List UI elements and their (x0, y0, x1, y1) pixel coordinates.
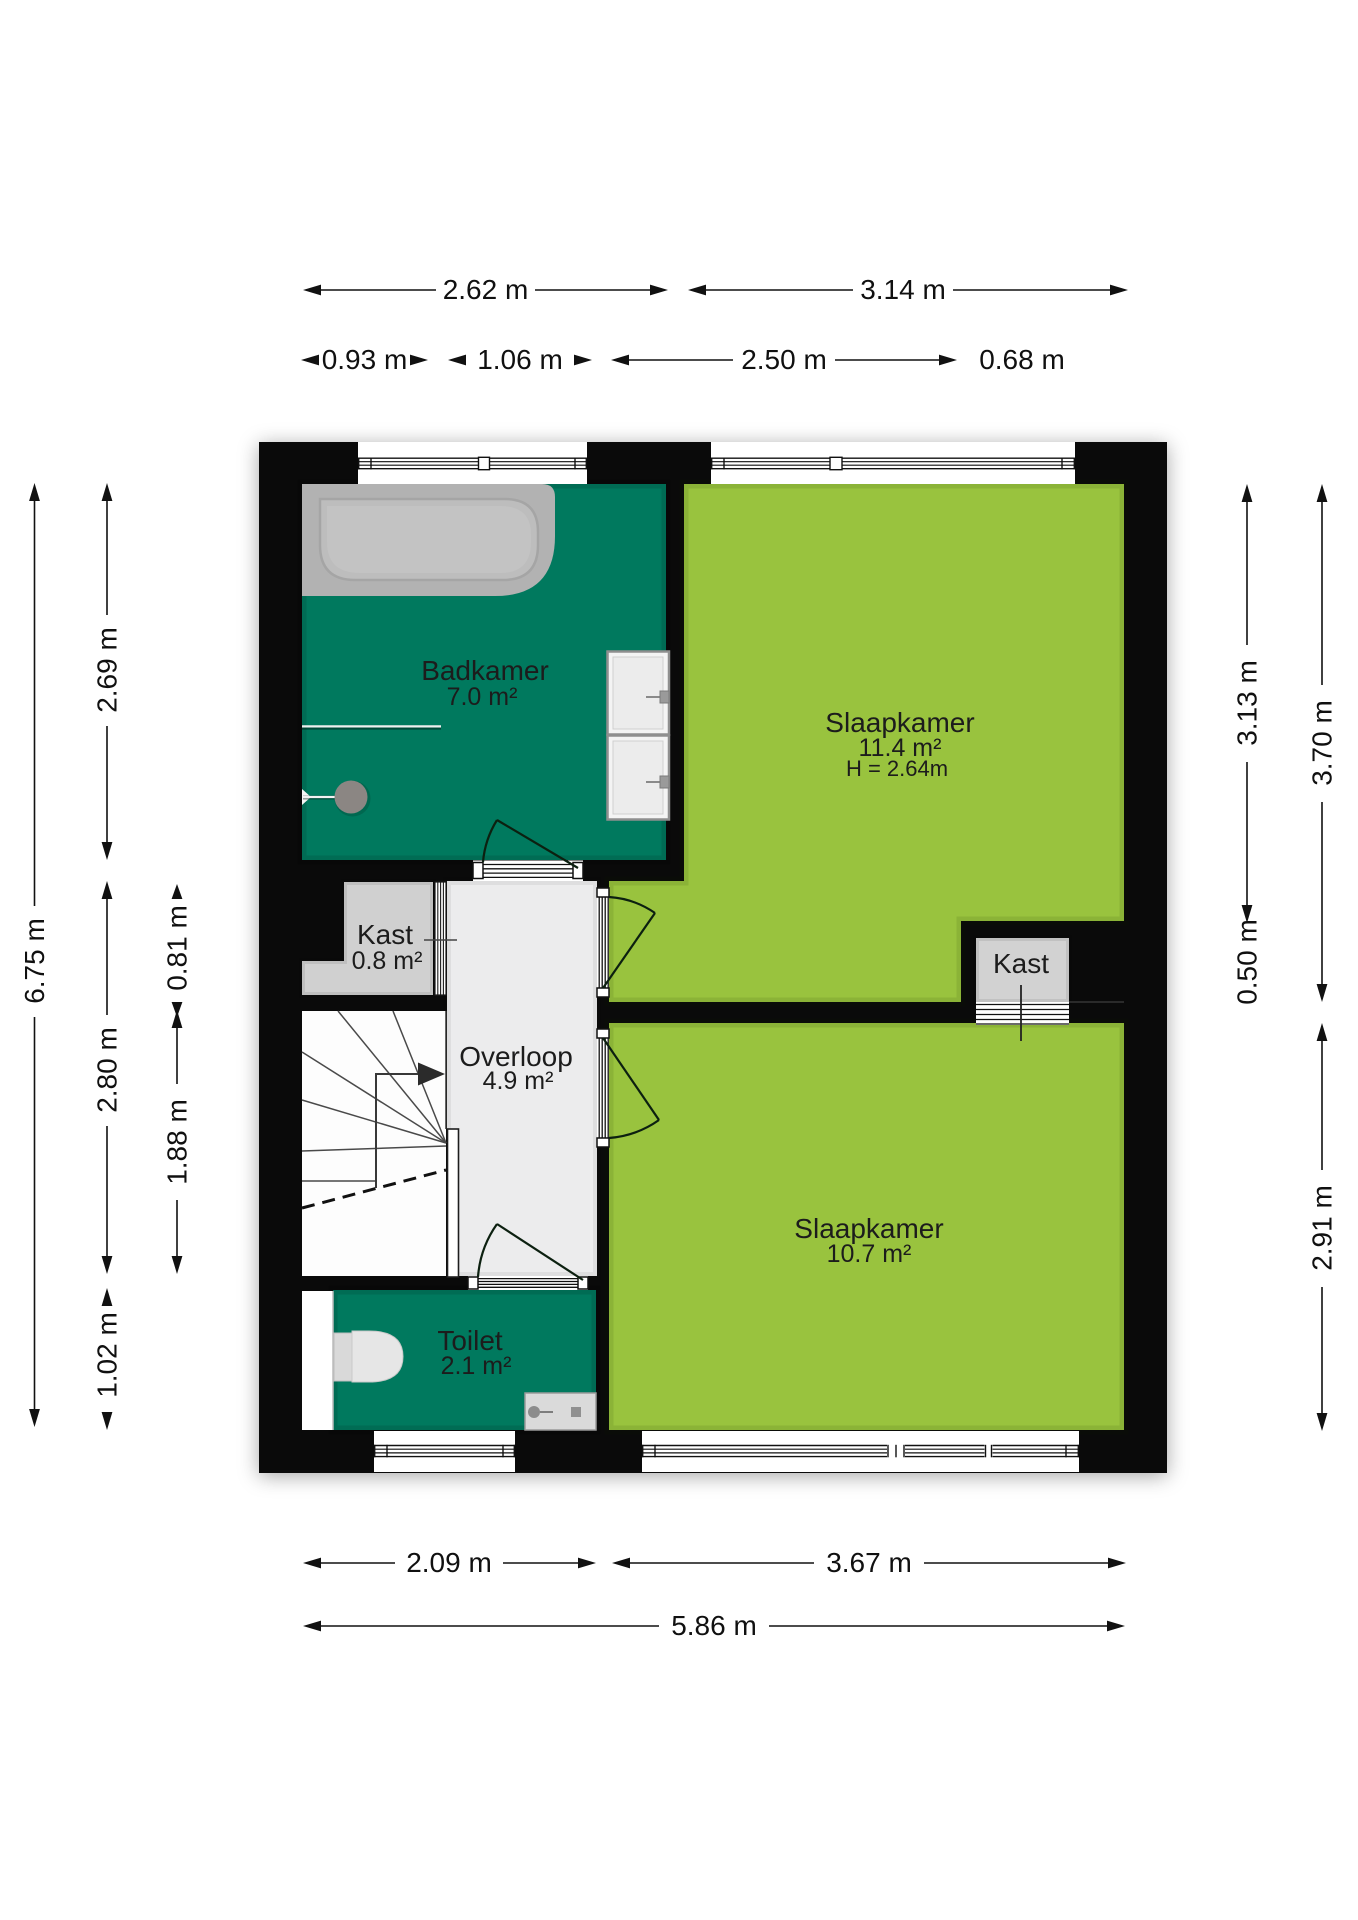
svg-text:4.9 m²: 4.9 m² (483, 1067, 554, 1095)
svg-text:1.88 m: 1.88 m (162, 1099, 193, 1185)
svg-text:3.13 m: 3.13 m (1232, 660, 1263, 746)
svg-text:2.91 m: 2.91 m (1307, 1185, 1338, 1271)
svg-text:10.7 m²: 10.7 m² (827, 1240, 912, 1268)
svg-text:0.8 m²: 0.8 m² (352, 947, 423, 975)
svg-text:3.70 m: 3.70 m (1307, 700, 1338, 786)
svg-text:1.06 m: 1.06 m (477, 344, 563, 375)
svg-text:3.67 m: 3.67 m (826, 1547, 912, 1578)
svg-text:3.14 m: 3.14 m (860, 274, 946, 305)
svg-text:0.93 m: 0.93 m (322, 344, 408, 375)
svg-text:2.80 m: 2.80 m (92, 1027, 123, 1113)
svg-text:2.50 m: 2.50 m (741, 344, 827, 375)
svg-text:5.86 m: 5.86 m (671, 1610, 757, 1641)
svg-text:6.75 m: 6.75 m (19, 918, 50, 1004)
svg-text:0.81 m: 0.81 m (162, 905, 193, 991)
svg-text:2.62 m: 2.62 m (443, 274, 529, 305)
svg-text:0.68 m: 0.68 m (979, 344, 1065, 375)
svg-text:0.50 m: 0.50 m (1232, 919, 1263, 1005)
svg-text:1.02 m: 1.02 m (92, 1312, 123, 1398)
svg-text:Kast: Kast (357, 919, 413, 950)
svg-text:7.0 m²: 7.0 m² (447, 683, 518, 711)
svg-text:Kast: Kast (993, 948, 1049, 979)
svg-text:2.1 m²: 2.1 m² (441, 1352, 512, 1380)
svg-text:H = 2.64m: H = 2.64m (846, 756, 948, 781)
svg-text:2.09 m: 2.09 m (406, 1547, 492, 1578)
svg-text:Badkamer: Badkamer (421, 655, 549, 686)
svg-text:2.69 m: 2.69 m (92, 627, 123, 713)
